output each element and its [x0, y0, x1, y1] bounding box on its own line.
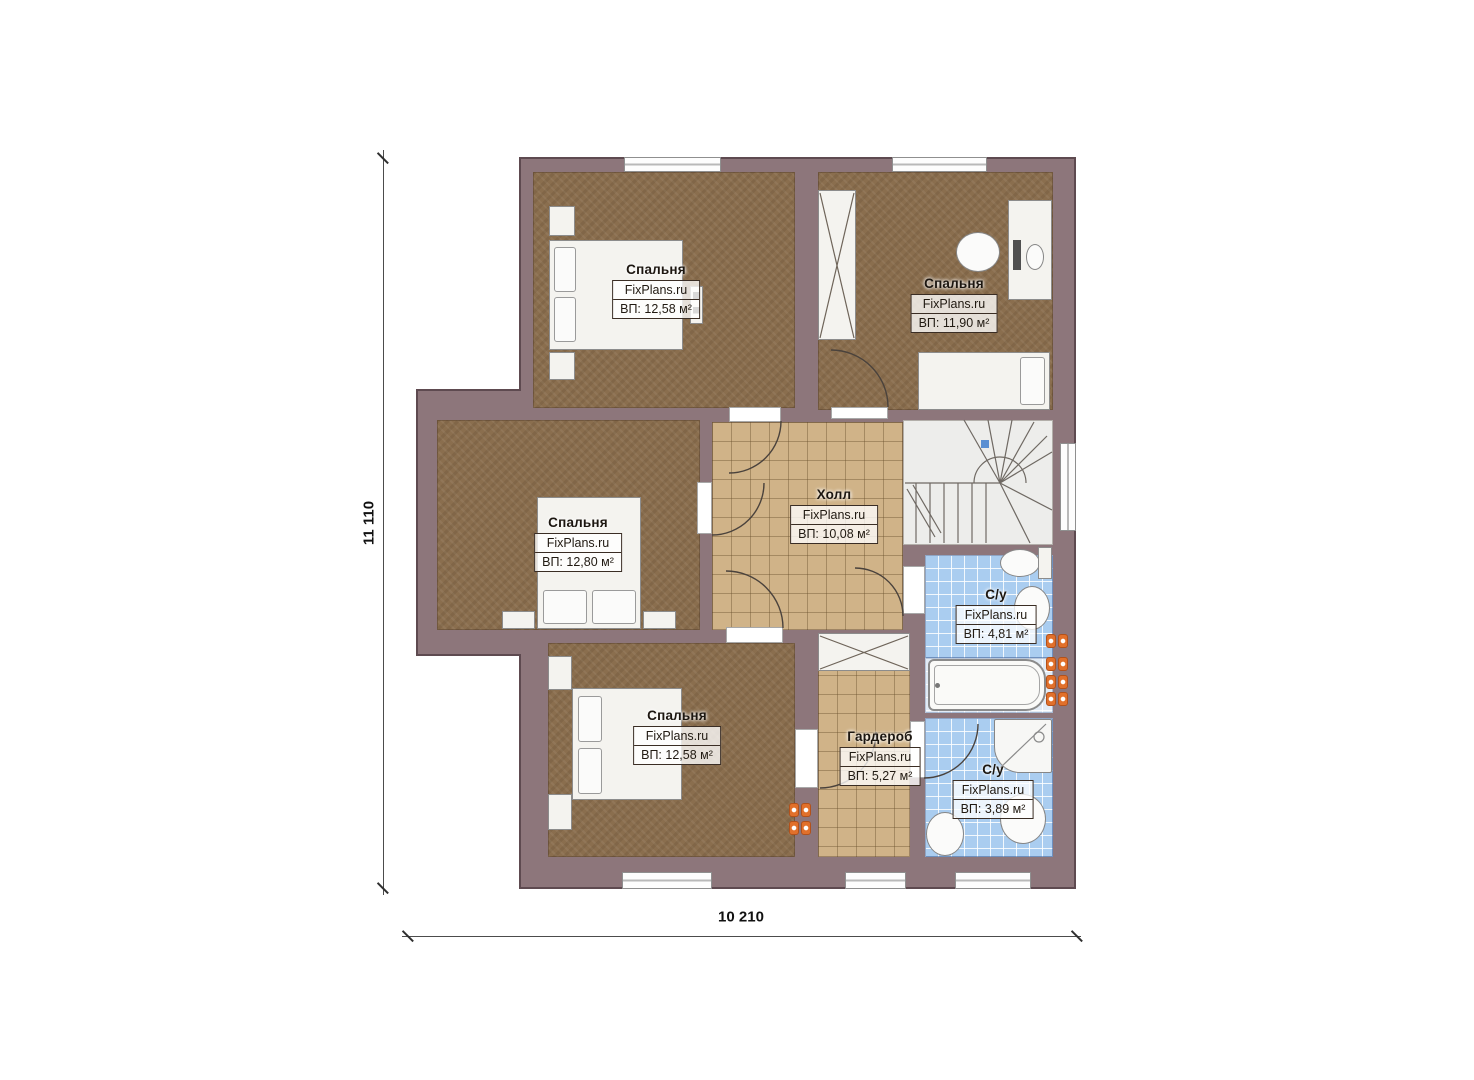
room-info-box: FixPlans.ru ВП: 5,27 м² [840, 747, 921, 786]
brand-label: FixPlans.ru [535, 534, 621, 552]
dimension-line-vertical [383, 150, 384, 895]
room-label-bedroom-top-left: Спальня FixPlans.ru ВП: 12,58 м² [612, 262, 700, 319]
room-area-label: ВП: 11,90 м² [912, 313, 997, 332]
radiator-icon [789, 803, 811, 817]
room-label-hall: Холл FixPlans.ru ВП: 10,08 м² [790, 487, 878, 544]
brand-label: FixPlans.ru [957, 606, 1036, 624]
room-label-bedroom-bottom-left: Спальня FixPlans.ru ВП: 12,58 м² [633, 708, 721, 765]
room-area-label: ВП: 3,89 м² [954, 799, 1033, 818]
dimension-label-bottom: 10 210 [718, 909, 764, 926]
brand-label: FixPlans.ru [634, 727, 720, 745]
room-name: С/у [985, 587, 1007, 602]
room-label-bedroom-mid-left: Спальня FixPlans.ru ВП: 12,80 м² [534, 515, 622, 572]
room-label-bedroom-top-right: Спальня FixPlans.ru ВП: 11,90 м² [911, 276, 998, 333]
room-name: Спальня [924, 276, 984, 291]
room-area-label: ВП: 12,58 м² [634, 745, 720, 764]
room-info-box: FixPlans.ru ВП: 12,58 м² [633, 726, 721, 765]
brand-label: FixPlans.ru [841, 748, 920, 766]
radiator-icon [1046, 692, 1068, 706]
room-info-box: FixPlans.ru ВП: 12,80 м² [534, 533, 622, 572]
room-info-box: FixPlans.ru ВП: 10,08 м² [790, 505, 878, 544]
room-area-label: ВП: 12,58 м² [613, 299, 699, 318]
room-name: Холл [817, 487, 852, 502]
room-area-label: ВП: 5,27 м² [841, 766, 920, 785]
room-info-box: FixPlans.ru ВП: 4,81 м² [956, 605, 1037, 644]
radiator-icon [1046, 634, 1068, 648]
room-info-box: FixPlans.ru ВП: 12,58 м² [612, 280, 700, 319]
radiator-icon [1046, 675, 1068, 689]
room-area-label: ВП: 4,81 м² [957, 624, 1036, 643]
room-name: Гардероб [847, 729, 912, 744]
brand-label: FixPlans.ru [954, 781, 1033, 799]
room-name: С/у [982, 762, 1004, 777]
radiator-icon [789, 821, 811, 835]
room-area-label: ВП: 10,08 м² [791, 524, 877, 543]
room-label-bathroom-upper: С/у FixPlans.ru ВП: 4,81 м² [956, 587, 1037, 644]
door-arcs [712, 350, 978, 788]
stairs-treads [905, 420, 1052, 543]
room-info-box: FixPlans.ru ВП: 3,89 м² [953, 780, 1034, 819]
brand-label: FixPlans.ru [613, 281, 699, 299]
room-label-wardrobe: Гардероб FixPlans.ru ВП: 5,27 м² [840, 729, 921, 786]
room-name: Спальня [548, 515, 608, 530]
brand-label: FixPlans.ru [791, 506, 877, 524]
room-area-label: ВП: 12,80 м² [535, 552, 621, 571]
room-name: Спальня [626, 262, 686, 277]
brand-label: FixPlans.ru [912, 295, 997, 313]
cabinet-cross-lines [820, 193, 908, 669]
dimension-label-left: 11 110 [361, 501, 378, 545]
floor-plan: Спальня FixPlans.ru ВП: 12,58 м² Спальня… [0, 0, 1474, 1080]
room-label-bathroom-lower: С/у FixPlans.ru ВП: 3,89 м² [953, 762, 1034, 819]
dimension-line-horizontal [402, 936, 1081, 937]
room-info-box: FixPlans.ru ВП: 11,90 м² [911, 294, 998, 333]
radiator-icon [1046, 657, 1068, 671]
stairs-direction-marker [981, 440, 989, 448]
room-name: Спальня [647, 708, 707, 723]
